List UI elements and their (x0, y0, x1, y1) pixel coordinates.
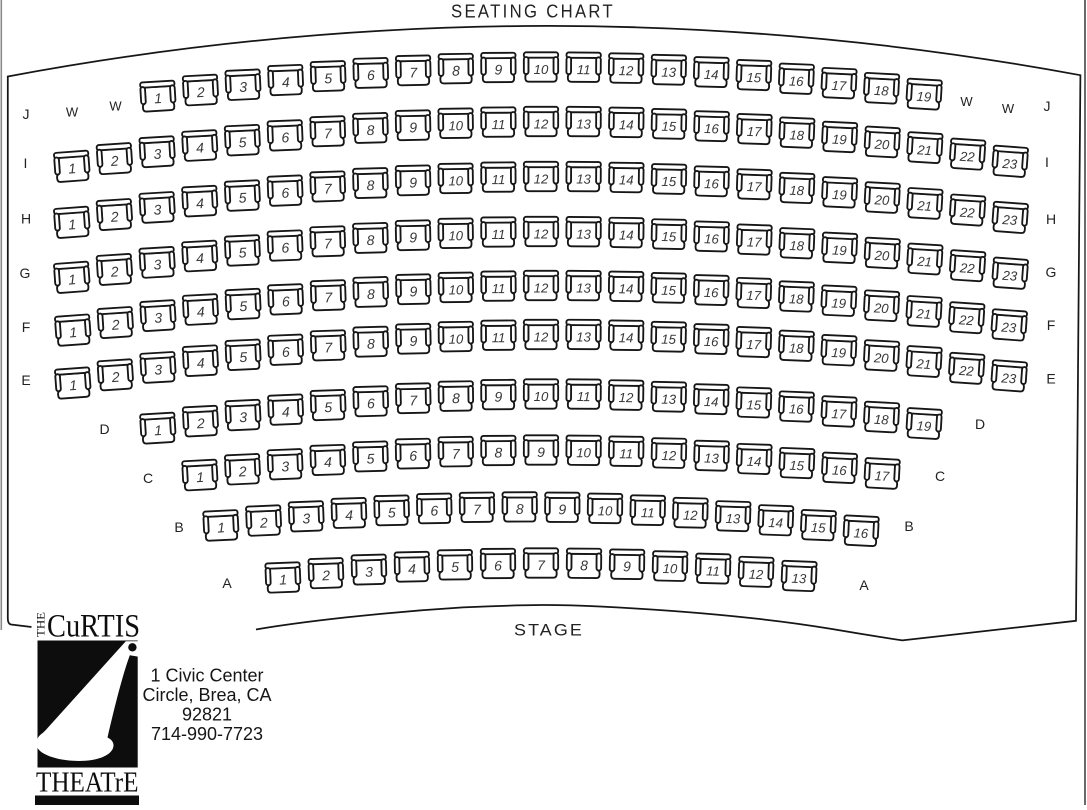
svg-text:5: 5 (324, 399, 333, 415)
svg-text:1: 1 (68, 216, 77, 233)
svg-text:9: 9 (409, 119, 417, 135)
svg-text:21: 21 (916, 254, 933, 270)
svg-text:15: 15 (661, 119, 677, 134)
svg-text:16: 16 (704, 285, 720, 300)
svg-text:20: 20 (873, 248, 890, 264)
svg-text:4: 4 (196, 303, 205, 319)
svg-text:10: 10 (598, 503, 613, 518)
svg-text:22: 22 (958, 312, 975, 328)
svg-text:10: 10 (448, 228, 464, 243)
svg-text:14: 14 (746, 454, 761, 469)
svg-text:3: 3 (281, 458, 290, 474)
svg-text:12: 12 (748, 567, 764, 583)
svg-text:6: 6 (367, 395, 375, 411)
svg-text:9: 9 (409, 229, 417, 245)
svg-text:13: 13 (725, 511, 741, 526)
svg-text:22: 22 (958, 260, 975, 276)
svg-text:1: 1 (68, 271, 77, 288)
svg-text:8: 8 (367, 286, 375, 302)
svg-text:13: 13 (791, 571, 807, 587)
svg-text:12: 12 (619, 390, 635, 405)
svg-text:4: 4 (282, 404, 291, 420)
svg-text:15: 15 (789, 458, 805, 474)
svg-text:SEATING CHART: SEATING CHART (451, 2, 615, 22)
svg-text:2: 2 (237, 463, 247, 479)
svg-text:16: 16 (789, 74, 805, 90)
svg-text:6: 6 (430, 502, 438, 518)
svg-text:5: 5 (324, 70, 333, 86)
svg-text:4: 4 (196, 195, 205, 211)
svg-text:21: 21 (915, 356, 932, 372)
svg-text:13: 13 (576, 329, 591, 344)
svg-text:4: 4 (196, 139, 205, 155)
svg-text:9: 9 (409, 283, 417, 299)
svg-text:22: 22 (958, 149, 975, 165)
svg-text:17: 17 (747, 179, 763, 194)
svg-text:13: 13 (576, 227, 591, 242)
svg-text:18: 18 (789, 341, 805, 357)
svg-text:10: 10 (662, 561, 678, 576)
svg-text:11: 11 (492, 330, 506, 345)
svg-text:8: 8 (494, 444, 502, 460)
svg-text:H: H (21, 211, 31, 227)
svg-text:3: 3 (154, 361, 163, 377)
svg-text:1: 1 (154, 90, 163, 106)
svg-text:17: 17 (831, 406, 847, 422)
svg-text:6: 6 (367, 67, 375, 83)
svg-text:14: 14 (619, 330, 634, 345)
svg-text:2: 2 (110, 369, 120, 386)
svg-text:8: 8 (367, 336, 375, 352)
svg-text:8: 8 (516, 501, 524, 517)
svg-text:4: 4 (196, 250, 205, 266)
svg-text:J: J (1044, 98, 1051, 114)
svg-text:10: 10 (448, 331, 464, 346)
svg-text:18: 18 (789, 127, 805, 143)
svg-text:5: 5 (388, 504, 396, 520)
svg-text:11: 11 (577, 62, 591, 77)
svg-text:2: 2 (195, 84, 205, 100)
svg-text:6: 6 (282, 293, 291, 309)
svg-text:3: 3 (154, 309, 163, 325)
svg-text:19: 19 (832, 243, 848, 259)
svg-text:3: 3 (153, 256, 162, 272)
svg-text:20: 20 (873, 192, 890, 208)
svg-text:17: 17 (746, 337, 762, 352)
svg-text:21: 21 (916, 142, 933, 158)
svg-text:15: 15 (661, 174, 677, 189)
svg-text:15: 15 (746, 397, 762, 412)
svg-text:5: 5 (238, 244, 247, 260)
svg-text:14: 14 (704, 67, 719, 82)
svg-text:15: 15 (661, 332, 677, 347)
svg-text:C: C (935, 468, 945, 484)
svg-text:I: I (1045, 154, 1049, 170)
svg-text:9: 9 (623, 558, 631, 574)
svg-text:A: A (859, 577, 869, 593)
svg-text:17: 17 (747, 234, 763, 249)
svg-text:2: 2 (195, 415, 205, 431)
svg-text:6: 6 (281, 129, 290, 145)
svg-text:5: 5 (238, 189, 247, 205)
svg-text:7: 7 (473, 501, 482, 517)
svg-text:B: B (174, 519, 183, 535)
svg-text:Circle, Brea, CA: Circle, Brea, CA (142, 685, 271, 705)
svg-text:1: 1 (196, 469, 205, 485)
svg-text:9: 9 (409, 174, 417, 190)
svg-text:15: 15 (811, 520, 827, 536)
svg-text:G: G (20, 265, 31, 281)
svg-text:16: 16 (704, 334, 720, 349)
svg-text:11: 11 (492, 281, 506, 296)
svg-text:F: F (1047, 317, 1056, 333)
svg-text:1: 1 (68, 160, 77, 177)
svg-text:12: 12 (534, 330, 549, 345)
svg-text:17: 17 (747, 124, 763, 139)
svg-text:14: 14 (619, 172, 634, 187)
svg-text:11: 11 (641, 505, 655, 520)
svg-text:13: 13 (661, 65, 677, 80)
svg-text:13: 13 (661, 392, 677, 407)
svg-text:14: 14 (619, 228, 634, 243)
svg-text:D: D (99, 421, 109, 437)
svg-text:8: 8 (452, 63, 460, 79)
svg-text:8: 8 (580, 557, 588, 573)
svg-text:4: 4 (345, 507, 353, 523)
svg-text:9: 9 (494, 389, 502, 405)
svg-text:W: W (960, 94, 973, 109)
svg-text:3: 3 (365, 563, 373, 579)
svg-text:18: 18 (789, 291, 805, 307)
svg-text:8: 8 (452, 390, 460, 406)
svg-text:3: 3 (239, 79, 248, 95)
svg-text:9: 9 (558, 501, 566, 517)
svg-text:21: 21 (915, 306, 932, 322)
svg-text:12: 12 (534, 172, 549, 187)
svg-text:2: 2 (259, 514, 269, 530)
svg-text:5: 5 (239, 298, 248, 314)
svg-text:9: 9 (409, 333, 417, 349)
svg-text:11: 11 (619, 446, 633, 461)
svg-text:4: 4 (196, 355, 205, 371)
svg-text:92821: 92821 (182, 705, 232, 725)
svg-text:STAGE: STAGE (514, 621, 584, 640)
svg-text:12: 12 (534, 117, 549, 132)
svg-text:18: 18 (874, 412, 890, 428)
svg-text:23: 23 (1001, 212, 1018, 228)
svg-text:15: 15 (661, 229, 677, 244)
svg-text:10: 10 (576, 445, 591, 460)
svg-text:15: 15 (661, 283, 677, 298)
svg-text:12: 12 (619, 63, 635, 78)
svg-text:H: H (1046, 211, 1056, 227)
svg-text:10: 10 (534, 62, 549, 77)
svg-text:21: 21 (916, 198, 933, 214)
svg-text:10: 10 (448, 118, 464, 133)
svg-text:F: F (22, 319, 31, 335)
svg-text:6: 6 (282, 344, 291, 360)
svg-text:16: 16 (832, 463, 848, 479)
svg-text:20: 20 (873, 137, 890, 153)
svg-text:13: 13 (576, 172, 591, 187)
svg-text:16: 16 (704, 121, 720, 136)
svg-text:19: 19 (832, 132, 848, 148)
svg-text:W: W (109, 99, 122, 114)
svg-text:14: 14 (768, 515, 783, 531)
svg-text:16: 16 (789, 401, 805, 417)
svg-text:5: 5 (239, 349, 248, 365)
svg-text:J: J (23, 106, 30, 122)
svg-text:12: 12 (534, 281, 549, 296)
svg-text:5: 5 (366, 450, 374, 466)
svg-text:W: W (66, 105, 79, 120)
svg-text:19: 19 (916, 418, 932, 434)
svg-text:18: 18 (789, 238, 805, 254)
svg-text:2: 2 (109, 263, 119, 280)
svg-text:E: E (21, 372, 30, 388)
svg-text:19: 19 (831, 345, 847, 361)
svg-text:22: 22 (958, 363, 975, 379)
svg-text:6: 6 (494, 557, 502, 573)
svg-text:11: 11 (492, 117, 506, 132)
svg-text:14: 14 (619, 281, 634, 296)
svg-text:19: 19 (832, 187, 848, 203)
svg-text:2: 2 (109, 208, 119, 225)
svg-text:14: 14 (619, 117, 634, 132)
svg-text:12: 12 (661, 448, 677, 463)
svg-text:12: 12 (534, 227, 549, 242)
svg-text:3: 3 (239, 409, 248, 425)
svg-text:9: 9 (537, 444, 545, 460)
svg-text:17: 17 (831, 78, 847, 94)
svg-text:8: 8 (366, 122, 374, 138)
svg-text:19: 19 (916, 89, 932, 105)
svg-text:4: 4 (408, 561, 416, 577)
svg-text:THEATrE: THEATrE (36, 767, 139, 799)
svg-text:2: 2 (109, 152, 119, 169)
svg-text:10: 10 (534, 389, 549, 404)
svg-text:9: 9 (494, 61, 502, 77)
svg-text:22: 22 (958, 205, 975, 221)
svg-text:13: 13 (704, 451, 720, 466)
svg-text:17: 17 (874, 468, 890, 484)
svg-text:B: B (904, 518, 913, 534)
svg-text:14: 14 (704, 394, 719, 409)
svg-text:15: 15 (746, 70, 762, 85)
svg-text:23: 23 (1001, 268, 1018, 284)
svg-text:1: 1 (279, 571, 287, 587)
svg-text:23: 23 (1001, 156, 1018, 172)
svg-text:1: 1 (217, 519, 226, 535)
svg-text:8: 8 (366, 177, 374, 193)
svg-text:G: G (1046, 264, 1057, 280)
svg-text:18: 18 (789, 183, 805, 199)
svg-text:16: 16 (704, 176, 720, 191)
svg-text:11: 11 (577, 389, 591, 404)
svg-text:13: 13 (576, 117, 591, 132)
svg-text:16: 16 (704, 231, 720, 246)
svg-text:16: 16 (853, 525, 869, 541)
svg-text:3: 3 (153, 146, 162, 162)
svg-text:I: I (24, 155, 28, 171)
svg-text:23: 23 (1000, 319, 1017, 335)
svg-text:E: E (1046, 371, 1055, 387)
svg-text:20: 20 (873, 350, 890, 366)
svg-text:11: 11 (492, 227, 506, 242)
svg-text:4: 4 (282, 74, 291, 90)
svg-text:17: 17 (746, 288, 762, 303)
svg-text:6: 6 (409, 448, 417, 464)
svg-text:4: 4 (324, 454, 333, 470)
svg-text:10: 10 (448, 173, 464, 188)
svg-text:18: 18 (874, 83, 890, 99)
svg-text:3: 3 (153, 201, 162, 217)
svg-text:20: 20 (873, 300, 890, 316)
svg-text:5: 5 (451, 559, 459, 575)
svg-text:714-990-7723: 714-990-7723 (151, 724, 263, 744)
svg-text:23: 23 (1000, 370, 1017, 386)
svg-text:6: 6 (281, 239, 290, 255)
svg-text:W: W (1002, 101, 1015, 116)
svg-text:3: 3 (302, 510, 311, 526)
svg-text:CuRTIS: CuRTIS (47, 609, 140, 645)
svg-text:1: 1 (154, 422, 163, 438)
svg-text:11: 11 (492, 172, 506, 187)
svg-text:2: 2 (110, 316, 120, 333)
svg-text:C: C (143, 470, 153, 486)
svg-text:1 Civic Center: 1 Civic Center (150, 666, 263, 686)
svg-text:8: 8 (366, 232, 374, 248)
svg-text:7: 7 (452, 446, 461, 462)
svg-text:1: 1 (69, 377, 78, 394)
svg-text:D: D (975, 416, 985, 432)
svg-text:A: A (222, 575, 232, 591)
svg-text:5: 5 (238, 134, 247, 150)
svg-text:12: 12 (683, 508, 699, 523)
svg-text:THE: THE (36, 612, 48, 637)
svg-text:7: 7 (537, 557, 546, 573)
svg-text:13: 13 (576, 281, 591, 296)
svg-text:1: 1 (69, 324, 78, 341)
svg-text:2: 2 (321, 567, 331, 583)
svg-text:10: 10 (448, 282, 464, 297)
svg-text:11: 11 (706, 563, 720, 578)
svg-text:6: 6 (281, 185, 290, 201)
svg-text:19: 19 (831, 295, 847, 311)
